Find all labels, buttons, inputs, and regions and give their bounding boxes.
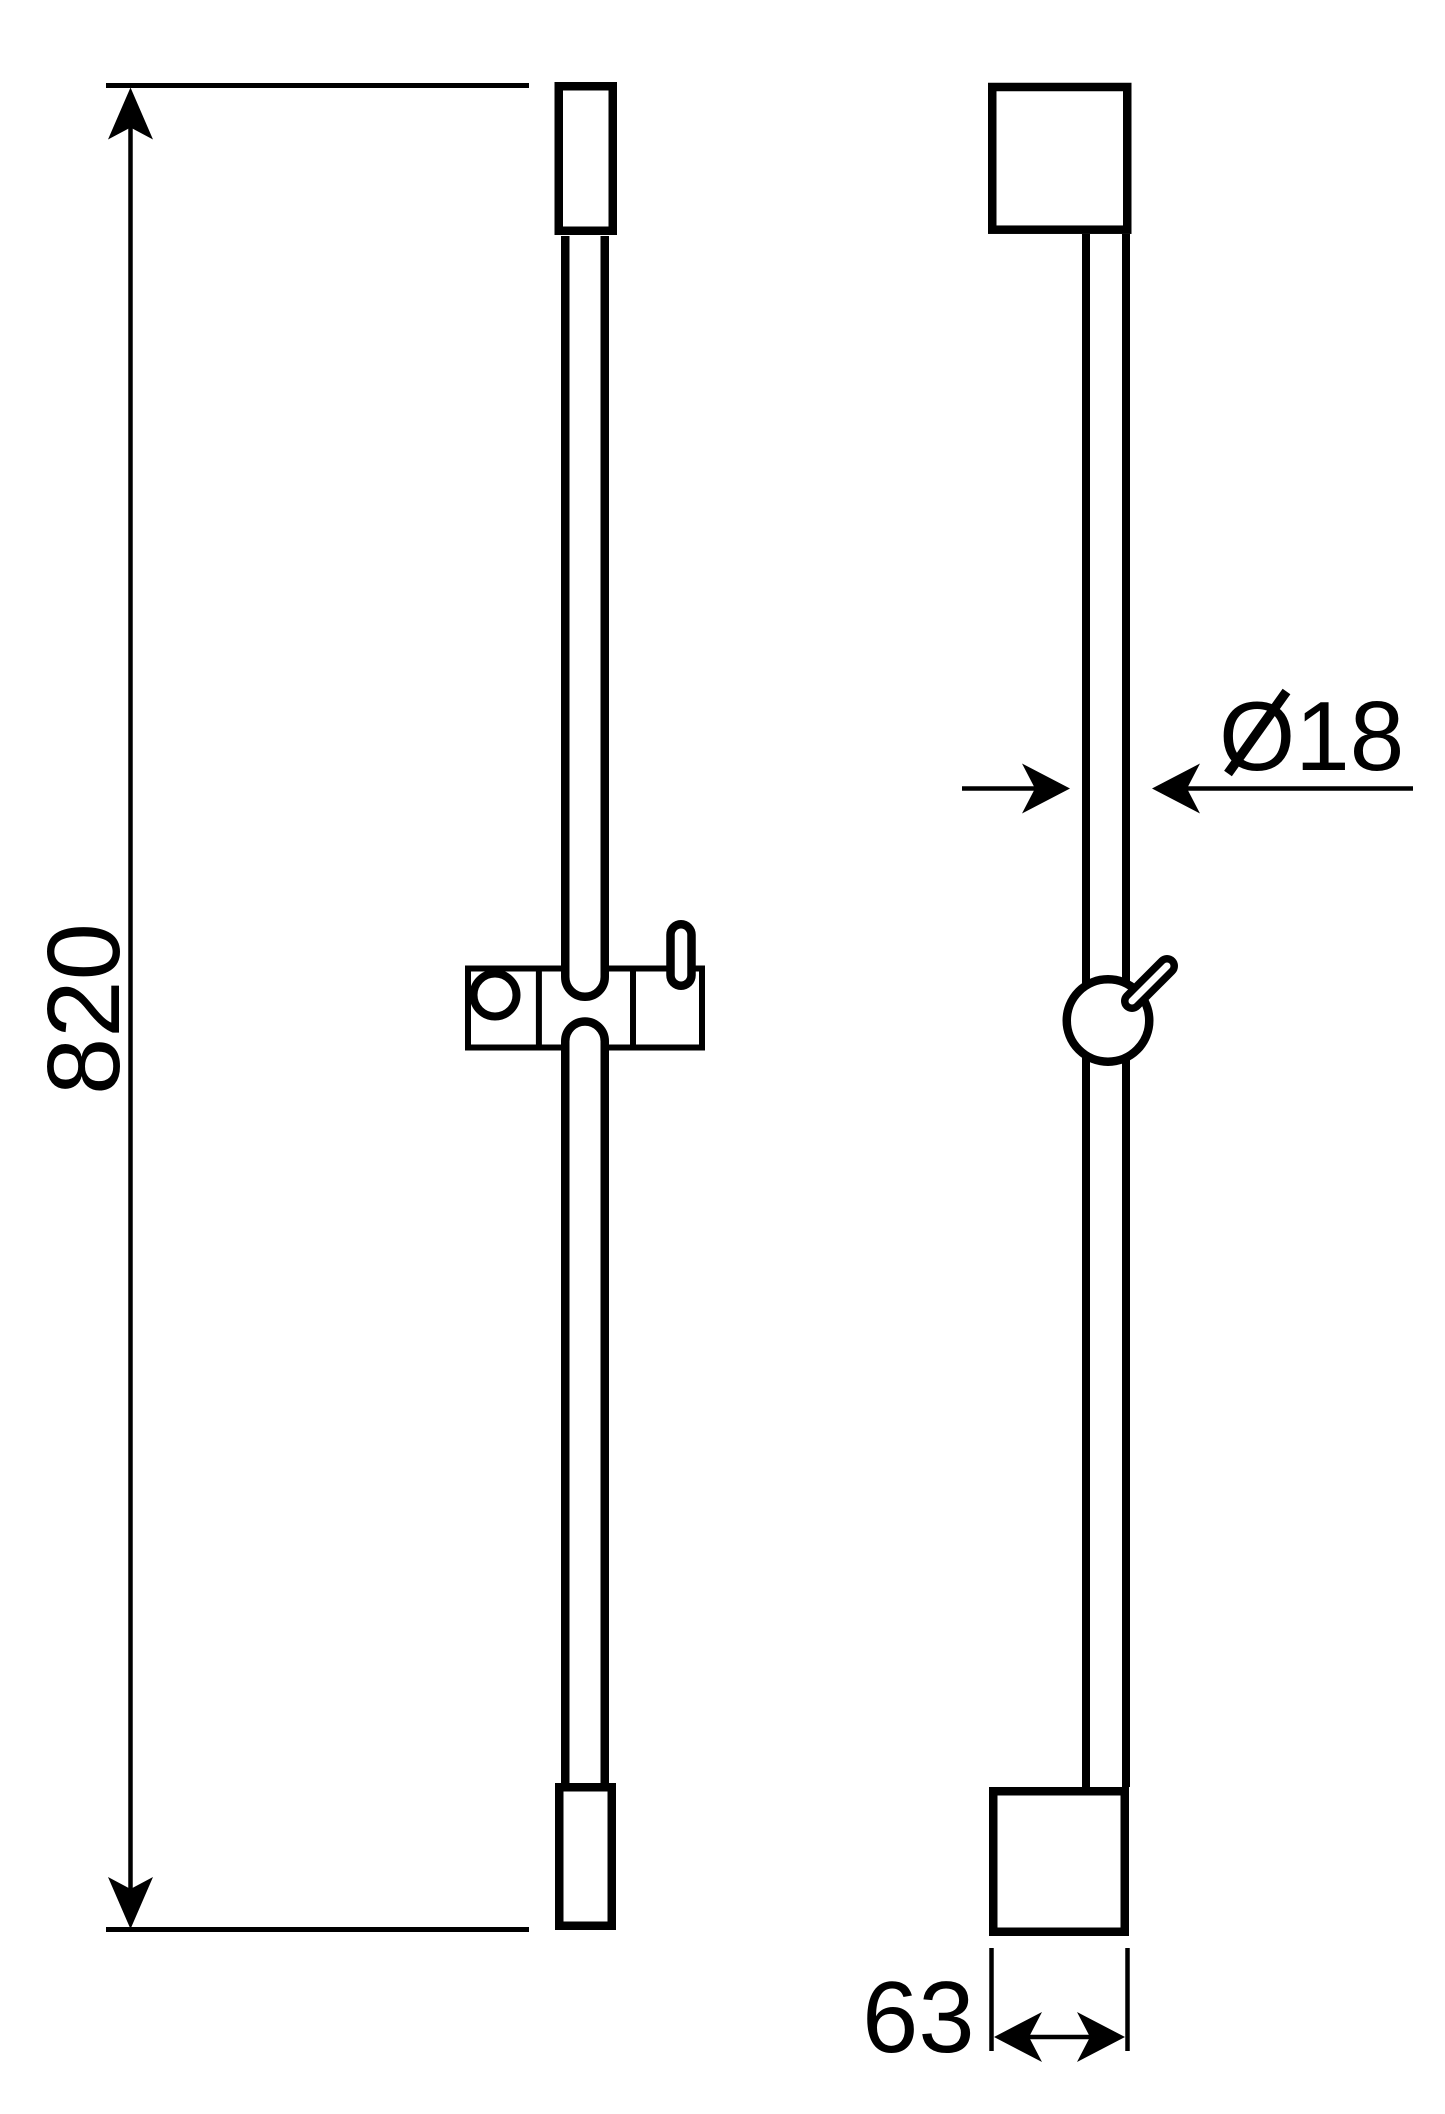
- svg-text:O18: O18: [1219, 681, 1404, 791]
- svg-text:820: 820: [26, 923, 141, 1095]
- svg-text:63: 63: [862, 1962, 974, 2074]
